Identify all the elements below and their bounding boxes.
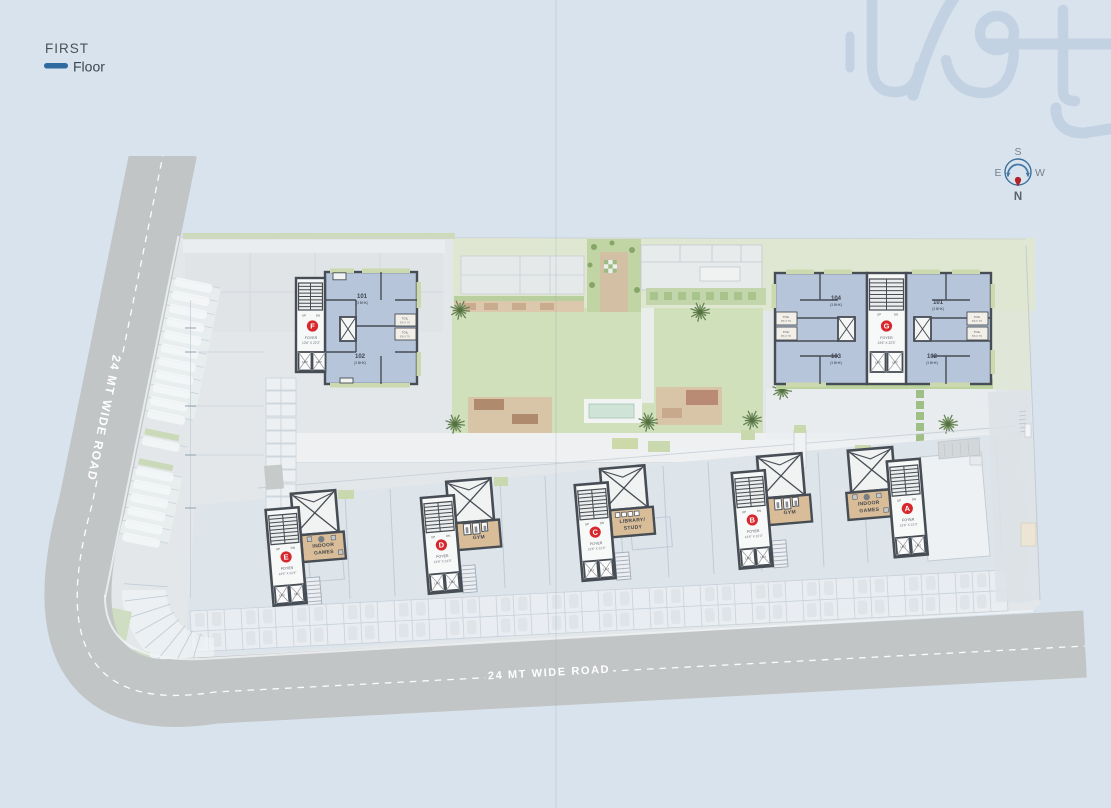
svg-text:LIFT: LIFT — [892, 361, 898, 365]
svg-text:8'6 X 7'0: 8'6 X 7'0 — [972, 334, 982, 338]
svg-text:G: G — [884, 322, 890, 331]
svg-text:13'6" X 22'3": 13'6" X 22'3" — [302, 341, 320, 345]
svg-text:UP: UP — [431, 535, 435, 539]
svg-text:LIFT: LIFT — [745, 556, 751, 560]
svg-text:LIFT: LIFT — [760, 555, 766, 559]
svg-text:Floor: Floor — [73, 59, 105, 75]
svg-text:UP: UP — [585, 522, 589, 526]
svg-text:TOIL: TOIL — [783, 315, 790, 319]
svg-text:LIFT: LIFT — [603, 567, 609, 571]
svg-text:8'6 X 7'0: 8'6 X 7'0 — [400, 321, 410, 325]
svg-text:(3 BHK): (3 BHK) — [830, 303, 842, 307]
svg-text:GYM: GYM — [783, 509, 796, 516]
svg-text:LIFT: LIFT — [279, 593, 285, 597]
svg-text:UP: UP — [897, 498, 901, 502]
svg-text:UP: UP — [877, 313, 881, 317]
svg-text:(3 BHK): (3 BHK) — [356, 301, 368, 305]
svg-text:LIFT: LIFT — [434, 581, 440, 585]
svg-text:LIFT: LIFT — [900, 544, 906, 548]
svg-text:DN: DN — [316, 314, 320, 318]
svg-text:FIRST: FIRST — [45, 41, 89, 56]
svg-text:DN: DN — [291, 546, 296, 550]
svg-text:LIFT: LIFT — [316, 360, 322, 364]
svg-text:E: E — [994, 167, 1001, 179]
svg-text:101: 101 — [357, 294, 368, 300]
svg-text:DN: DN — [912, 497, 917, 501]
svg-text:GYM: GYM — [473, 534, 486, 541]
svg-text:F: F — [310, 322, 315, 331]
svg-text:S: S — [1014, 146, 1021, 158]
svg-text:TOIL: TOIL — [974, 330, 981, 334]
svg-text:8'6 X 7'0: 8'6 X 7'0 — [781, 319, 791, 323]
svg-text:DN: DN — [894, 313, 898, 317]
svg-text:8'6 X 7'0: 8'6 X 7'0 — [400, 335, 410, 339]
svg-text:LIFT: LIFT — [875, 361, 881, 365]
svg-text:LIFT: LIFT — [302, 360, 308, 364]
svg-text:TOIL: TOIL — [402, 317, 409, 321]
svg-text:13'6" X 22'3": 13'6" X 22'3" — [877, 341, 895, 345]
svg-text:(3 BHK): (3 BHK) — [926, 361, 938, 365]
svg-text:TOIL: TOIL — [974, 315, 981, 319]
svg-text:101: 101 — [933, 300, 944, 306]
svg-text:102: 102 — [355, 354, 366, 360]
svg-text:102: 102 — [927, 354, 938, 360]
svg-text:LIFT: LIFT — [294, 592, 300, 596]
svg-text:LIFT: LIFT — [588, 568, 594, 572]
svg-text:8'6 X 7'0: 8'6 X 7'0 — [972, 319, 982, 323]
svg-text:(3 BHK): (3 BHK) — [354, 361, 366, 365]
svg-text:8'6 X 7'0: 8'6 X 7'0 — [781, 334, 791, 338]
svg-text:DN: DN — [600, 521, 605, 525]
svg-text:(3 BHK): (3 BHK) — [830, 361, 842, 365]
svg-text:TOIL: TOIL — [783, 330, 790, 334]
svg-text:FOYER: FOYER — [305, 336, 318, 340]
svg-text:E: E — [283, 552, 289, 561]
svg-text:(3 BHK): (3 BHK) — [932, 307, 944, 311]
svg-text:DN: DN — [446, 534, 451, 538]
svg-text:TOIL: TOIL — [402, 331, 409, 335]
svg-text:UP: UP — [276, 547, 280, 551]
svg-text:UP: UP — [302, 314, 306, 318]
svg-text:UP: UP — [742, 510, 746, 514]
svg-text:FOYER: FOYER — [880, 336, 893, 340]
svg-text:N: N — [1014, 191, 1022, 203]
svg-text:103: 103 — [831, 354, 842, 360]
svg-text:W: W — [1035, 167, 1045, 179]
svg-text:LIFT: LIFT — [449, 580, 455, 584]
svg-text:DN: DN — [757, 509, 762, 513]
svg-text:104: 104 — [831, 296, 842, 302]
svg-text:LIFT: LIFT — [915, 543, 921, 547]
